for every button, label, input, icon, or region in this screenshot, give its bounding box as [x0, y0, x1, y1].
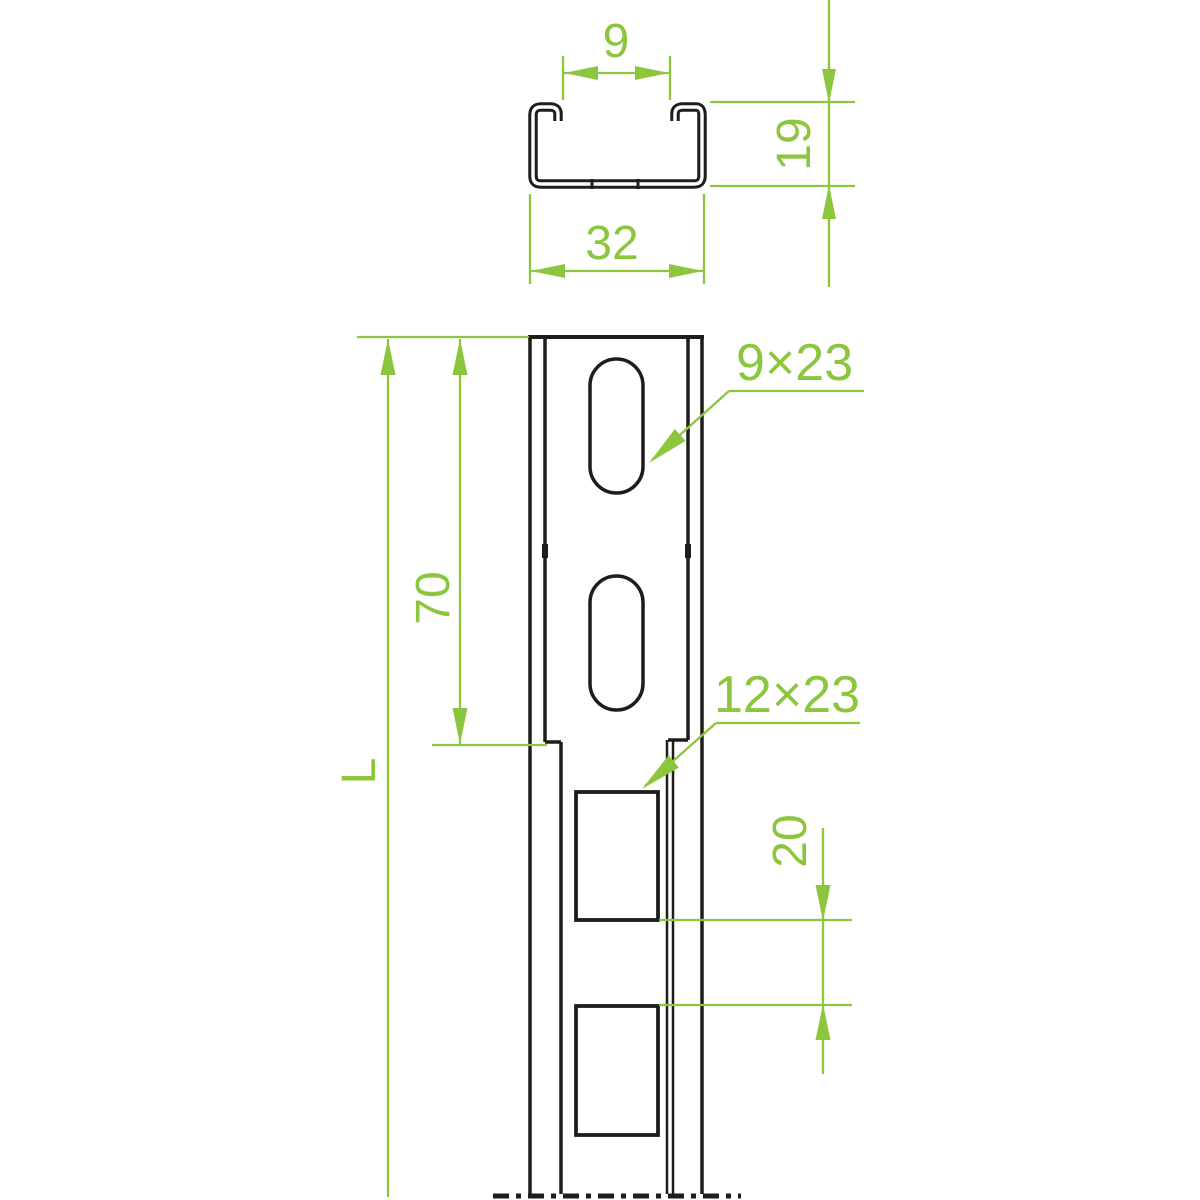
rect-hole-2 — [576, 1006, 658, 1135]
arrowhead — [453, 708, 468, 744]
dim-profile-width-label: 32 — [585, 217, 638, 270]
technical-drawing-page: 9 32 19 — [0, 0, 1200, 1200]
arrowhead — [635, 66, 669, 80]
cross-section-view: 9 32 19 — [530, 0, 855, 287]
arrowhead — [381, 339, 396, 375]
arrowhead — [669, 264, 703, 278]
arrowhead — [822, 69, 836, 103]
arrowhead — [822, 185, 836, 219]
leader-rect-hole — [645, 723, 860, 786]
arrowhead — [816, 885, 831, 921]
front-view: L 70 9×23 12×23 20 — [333, 334, 864, 1197]
rect-hole-1 — [576, 792, 658, 920]
arrowhead — [531, 264, 565, 278]
dim-70-label: 70 — [407, 571, 460, 624]
dim-opening-width-label: 9 — [603, 15, 630, 68]
arrowhead — [816, 1004, 831, 1040]
rect-hole-label: 12×23 — [714, 666, 860, 724]
arrowhead — [453, 339, 468, 375]
oval-hole-label: 9×23 — [736, 334, 853, 392]
dim-gap-label: 20 — [764, 814, 817, 867]
arrowhead — [644, 429, 686, 469]
technical-drawing-svg: 9 32 19 — [0, 0, 1200, 1200]
leader-oval-hole — [652, 391, 864, 460]
oval-hole-1 — [590, 359, 643, 493]
cross-section-profile-core — [533, 107, 702, 184]
oval-hole-2 — [590, 576, 643, 710]
dim-length-label: L — [333, 758, 386, 785]
dim-profile-height-label: 19 — [768, 117, 821, 170]
arrowhead — [564, 66, 598, 80]
